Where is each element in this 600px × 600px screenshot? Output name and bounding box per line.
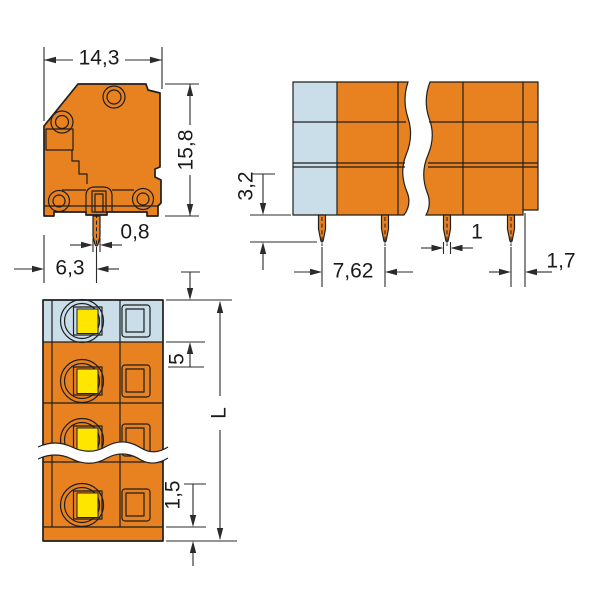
dim-label-end-offset: 1,7 (546, 250, 575, 273)
dim-label-first-division: 5 (166, 353, 189, 365)
side-view: 14,3 15,8 0,8 (14, 47, 199, 284)
front-end-section (293, 82, 337, 215)
dim-label-pitch: 7,62 (333, 260, 374, 283)
dim-label-front-pin-width: 1 (471, 221, 483, 244)
dim-label-pin-width: 0,8 (120, 221, 149, 244)
dimension-first-division: 5 (166, 272, 233, 367)
dim-label-overall-height: 15,8 (175, 130, 198, 171)
screw-slot-yellow (77, 369, 98, 394)
dimension-end-offset: 1,7 (489, 213, 576, 287)
dim-label-pin-length: 3,2 (235, 171, 258, 200)
screw-slot-yellow (77, 309, 98, 334)
dimension-pitch: 7,62 (294, 247, 413, 287)
terminal-block-dimension-drawing: 14,3 15,8 0,8 (0, 0, 600, 600)
front-body-right (424, 82, 538, 215)
top-view: 5 L 1,5 (38, 272, 237, 566)
dimension-front-pin-width: 1 (421, 221, 483, 255)
front-view: 3,2 7,62 1 (235, 82, 576, 287)
dimension-pin-offset: 6,3 (14, 235, 119, 283)
screw-slot-yellow (77, 493, 98, 518)
dimension-overall-height: 15,8 (165, 84, 199, 216)
dimension-side-pin-width: 0,8 (70, 221, 150, 253)
dimension-end-wall: 1,5 (162, 480, 207, 566)
dim-label-overall-width: 14,3 (79, 47, 120, 70)
dim-label-end-wall: 1,5 (162, 480, 185, 509)
front-solder-pins (319, 215, 515, 246)
dim-label-length: L (208, 407, 231, 419)
technical-drawing-page: 14,3 15,8 0,8 (0, 0, 600, 600)
screw-slot-yellow (77, 428, 98, 453)
dim-label-pin-offset: 6,3 (55, 257, 84, 280)
